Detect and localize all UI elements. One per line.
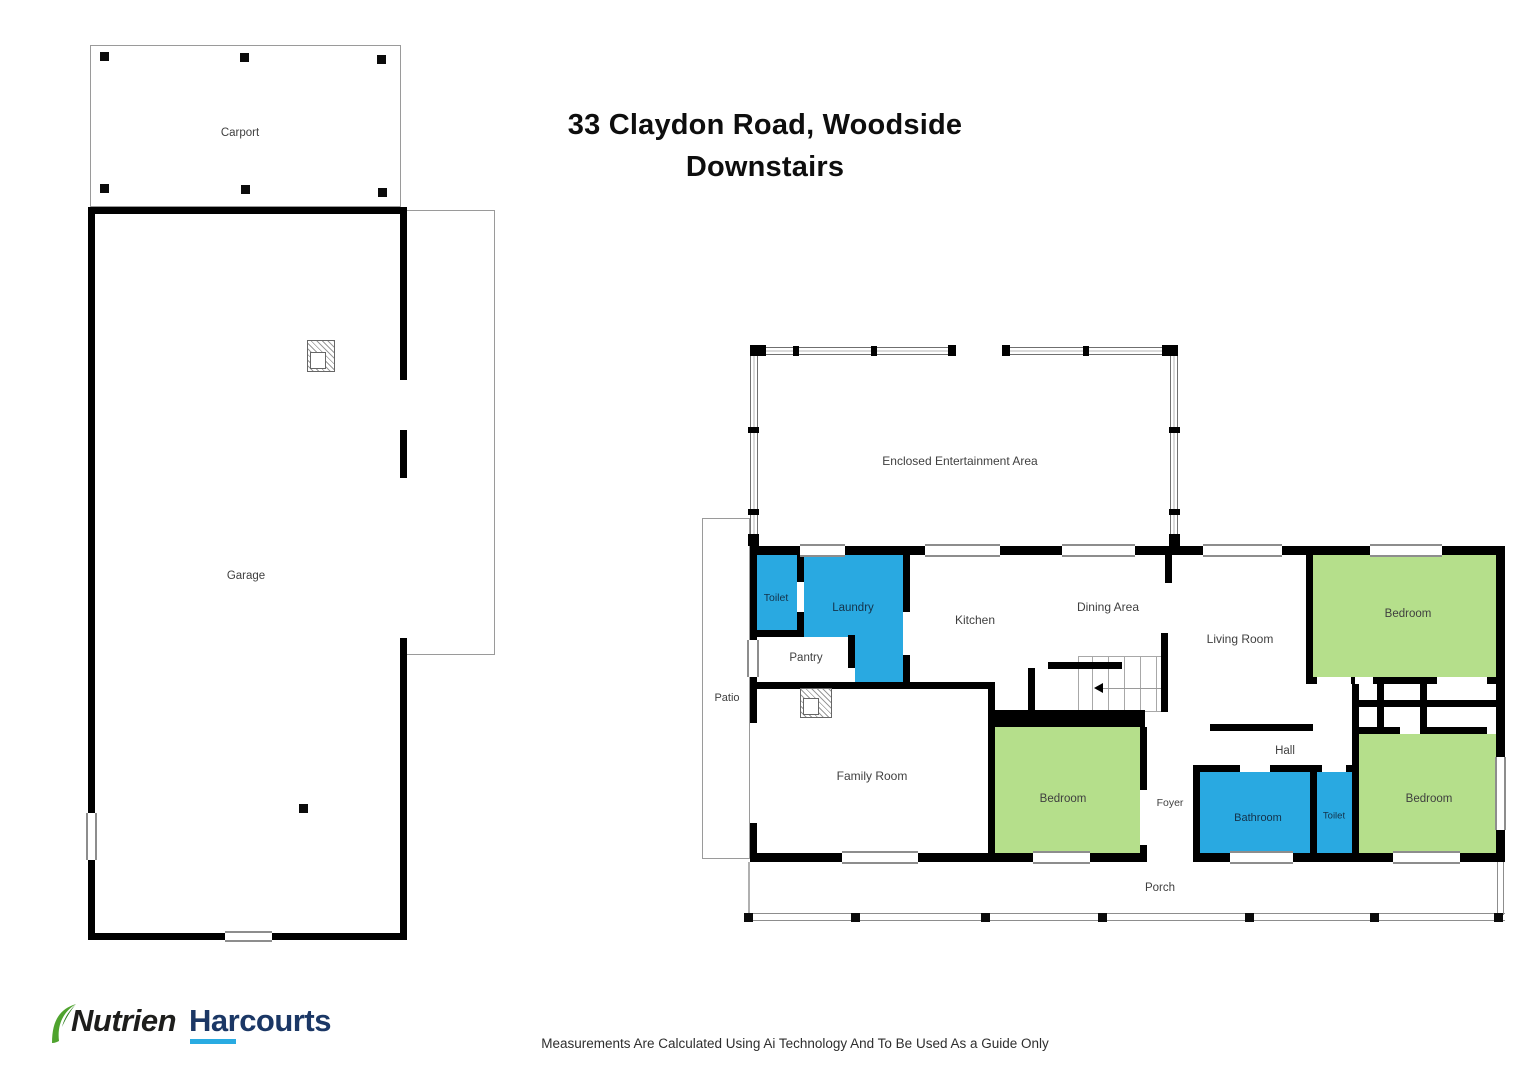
aline-segment <box>1103 688 1165 689</box>
gap-segment <box>1437 677 1487 684</box>
gap-segment <box>1240 765 1270 772</box>
garage-annex-outline <box>403 210 495 655</box>
carport-outline <box>90 45 401 207</box>
gap-segment <box>1355 677 1373 684</box>
wall-segment <box>1352 765 1359 853</box>
wall-segment <box>1165 555 1172 583</box>
winv-segment <box>1495 757 1506 830</box>
post-segment <box>744 913 753 922</box>
room-laundry <box>804 555 903 637</box>
wall-segment <box>1352 727 1496 734</box>
wall-segment <box>1140 727 1147 790</box>
tick-segment <box>1083 346 1089 356</box>
room-label-hall: Hall <box>1275 745 1295 757</box>
wall-segment <box>903 555 910 612</box>
post-segment <box>1098 913 1107 922</box>
ewv-segment <box>750 347 758 545</box>
plan-segment <box>52 1004 76 1043</box>
ewv-segment <box>1170 347 1178 545</box>
tick-segment <box>1169 427 1180 433</box>
room-label-porch: Porch <box>1145 882 1175 894</box>
winv-segment <box>747 640 759 677</box>
gap-segment <box>400 380 407 430</box>
post-segment <box>241 185 250 194</box>
wall-segment <box>1352 677 1359 765</box>
room-label-living: Living Room <box>1207 632 1274 646</box>
room-label-carport: Carport <box>221 127 259 139</box>
tick-segment <box>748 427 759 433</box>
gap-segment <box>1487 727 1496 734</box>
wall-segment <box>848 635 855 668</box>
garage-window-south <box>225 931 272 942</box>
brand-harcourts-text: Harcourts <box>189 1003 331 1038</box>
wall-segment <box>750 630 804 637</box>
post-segment <box>100 184 109 193</box>
wall-segment <box>1140 845 1147 853</box>
post-segment <box>299 804 308 813</box>
title-address: 33 Claydon Road, Woodside <box>480 104 1050 146</box>
room-bedroom-centre <box>995 727 1140 853</box>
room-label-bedroom-bottom-right: Bedroom <box>1406 793 1453 805</box>
patio-outline <box>702 518 750 859</box>
winh-segment <box>800 544 845 557</box>
room-label-bathroom: Bathroom <box>1234 812 1282 824</box>
gap-segment <box>1400 727 1420 734</box>
gap-segment <box>956 344 1002 357</box>
post-segment <box>1494 913 1503 922</box>
agency-logo: Nutrien Harcourts <box>46 1003 331 1049</box>
garage-chimney-symbol <box>307 340 335 372</box>
room-label-bedroom-top-right: Bedroom <box>1385 608 1432 620</box>
winh-segment <box>1033 851 1090 864</box>
tick-segment <box>748 534 759 546</box>
room-label-toilet-1: Toilet <box>764 592 789 604</box>
tick-segment <box>871 346 877 356</box>
room-label-toilet-2: Toilet <box>1323 811 1345 822</box>
winh-segment <box>925 544 1000 557</box>
room-label-kitchen: Kitchen <box>955 613 995 627</box>
room-label-laundry: Laundry <box>832 602 874 614</box>
tick-segment <box>1169 534 1180 546</box>
wall-segment <box>1048 662 1122 669</box>
winh-segment <box>1203 544 1282 557</box>
family-room-chimney-symbol <box>800 688 832 718</box>
tick-segment <box>748 509 759 515</box>
gap-segment <box>1322 765 1346 772</box>
wall-segment <box>1306 555 1313 677</box>
page-title: 33 Claydon Road, Woodside Downstairs <box>480 104 1050 188</box>
wall-segment <box>1193 765 1200 853</box>
gap-segment <box>400 478 407 638</box>
tick-segment <box>1162 345 1178 356</box>
room-label-garage: Garage <box>227 570 265 582</box>
tick-segment <box>1169 509 1180 515</box>
wall-segment <box>1028 668 1035 712</box>
wall-segment <box>750 682 995 689</box>
tick-segment <box>948 345 956 356</box>
winh-segment <box>1393 851 1460 864</box>
brand-nutrien: Nutrien <box>71 1003 176 1039</box>
in-segment <box>803 698 819 715</box>
patio-door-opening <box>750 723 757 823</box>
post-segment <box>377 55 386 64</box>
winh-segment <box>842 851 918 864</box>
post-segment <box>851 913 860 922</box>
room-label-dining: Dining Area <box>1077 600 1139 614</box>
garage-window-west <box>86 813 97 860</box>
winh-segment <box>1230 851 1293 864</box>
title-level: Downstairs <box>480 146 1050 188</box>
post-segment <box>1245 913 1254 922</box>
nutrien-leaf-icon <box>46 1003 80 1045</box>
brand-harcourts: Harcourts <box>189 1003 331 1039</box>
post-segment <box>100 52 109 61</box>
wall-segment <box>1210 724 1313 731</box>
room-label-bedroom-centre: Bedroom <box>1040 793 1087 805</box>
wall-segment <box>797 555 804 582</box>
post-segment <box>378 188 387 197</box>
gap-segment <box>1317 677 1351 684</box>
wall-segment <box>1161 633 1168 712</box>
winh-segment <box>1370 544 1442 557</box>
winh-segment <box>1062 544 1135 557</box>
disclaimer-text: Measurements Are Calculated Using Ai Tec… <box>495 1036 1095 1051</box>
harcourts-underline <box>190 1039 236 1044</box>
room-label-entertainment: Enclosed Entertainment Area <box>882 454 1037 468</box>
vline2-segment <box>1497 862 1504 915</box>
wall-segment <box>1310 765 1317 853</box>
room-label-pantry: Pantry <box>789 652 822 664</box>
post-segment <box>981 913 990 922</box>
tick-segment <box>793 346 799 356</box>
tick-segment <box>750 345 766 356</box>
front-door-opening <box>1147 853 1193 862</box>
room-label-family: Family Room <box>837 769 908 783</box>
porchline-segment <box>748 913 1505 921</box>
wall-segment <box>988 682 995 862</box>
wall-segment <box>988 710 1145 727</box>
stairs-direction-arrow <box>1094 683 1103 693</box>
room-label-foyer: Foyer <box>1157 797 1184 809</box>
tick-segment <box>1002 345 1010 356</box>
in-segment <box>310 352 326 369</box>
post-segment <box>1370 913 1379 922</box>
room-label-patio: Patio <box>714 692 739 704</box>
vline-segment <box>748 862 750 915</box>
post-segment <box>240 53 249 62</box>
floorplan-page: 33 Claydon Road, Woodside Downstairs Car… <box>0 0 1528 1080</box>
